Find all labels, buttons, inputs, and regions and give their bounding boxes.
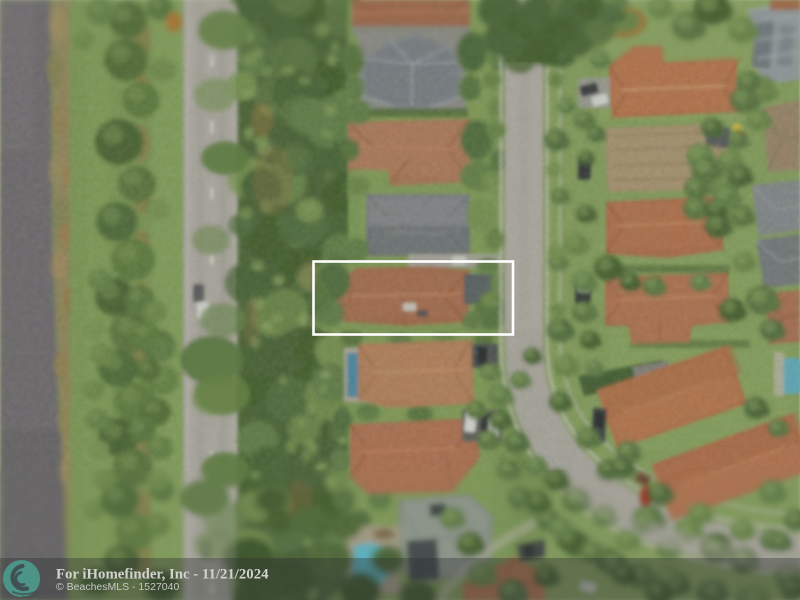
svg-text:© BeachesMLS - 1527040: © BeachesMLS - 1527040 xyxy=(56,581,179,593)
